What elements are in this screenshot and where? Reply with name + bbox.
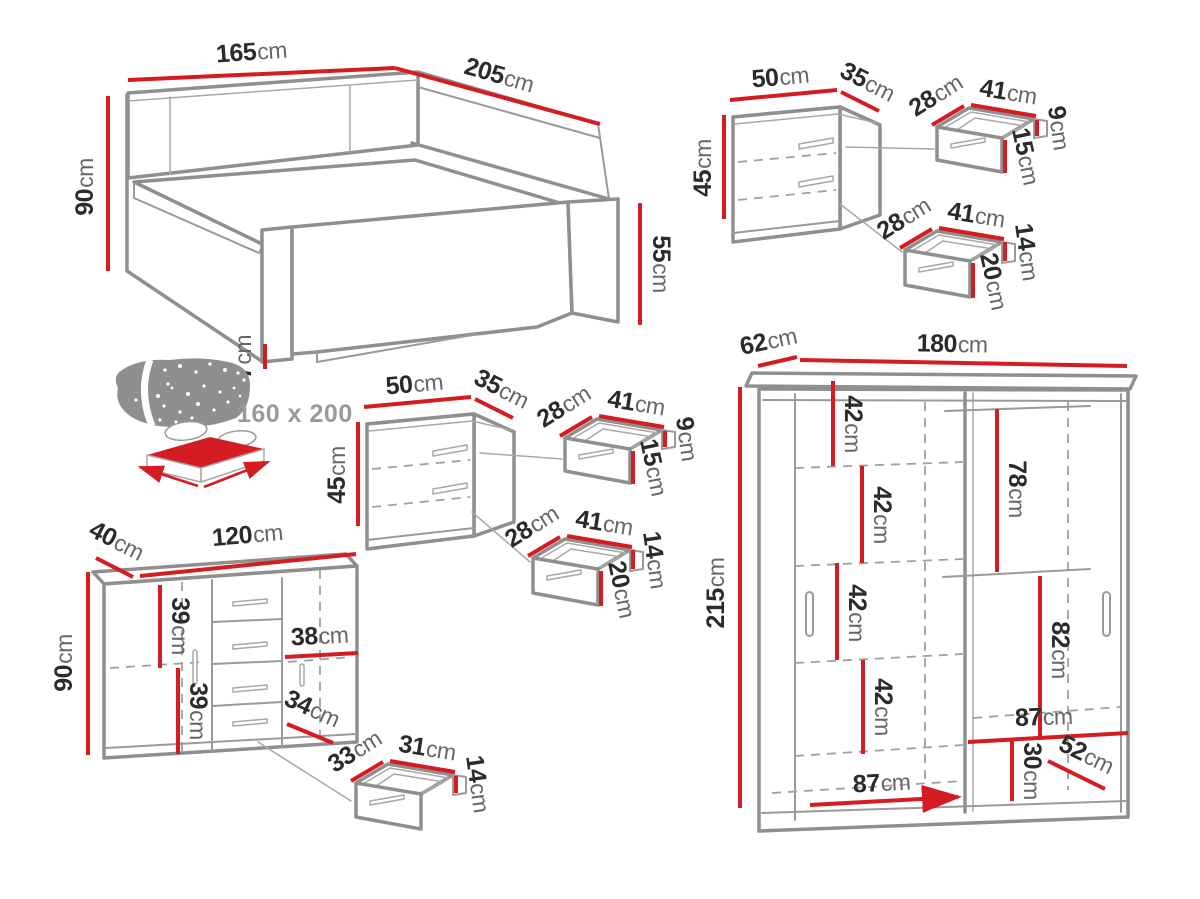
wardrobe-depth-label: 62cm xyxy=(737,322,799,361)
wardrobe-hanging-lower-label: 82cm xyxy=(1046,621,1074,678)
drawer-width-label: 41cm xyxy=(978,74,1039,111)
drawer-front xyxy=(356,783,421,829)
drawer-front xyxy=(905,250,970,297)
bed-height-label: 90cm xyxy=(71,158,99,215)
wardrobe-shelf-1-label: 42cm xyxy=(839,395,867,452)
dimension-line xyxy=(800,360,1127,366)
chest-height-label: 90cm xyxy=(50,634,78,691)
nightstand-front xyxy=(733,107,840,242)
mattress-size-icon: 160 x 200 xyxy=(116,358,353,487)
bed-width-dimension: 165cm xyxy=(128,36,395,80)
drawer-width-label: 41cm xyxy=(606,385,667,422)
nightstand-1-top-drawer: 28cm 41cm 9cm 15cm xyxy=(904,68,1076,187)
nightstand-side xyxy=(474,414,514,536)
wardrobe-shelf-2-label: 42cm xyxy=(868,486,896,543)
wardrobe-width-label: 180cm xyxy=(916,329,987,358)
wardrobe-width-dimension: 180cm xyxy=(800,329,1127,366)
chest-height-dimension: 90cm xyxy=(50,572,88,755)
mattress-size-label: 160 x 200 xyxy=(237,400,353,428)
dimension-line xyxy=(364,397,471,407)
sliding-door-handle xyxy=(806,592,813,636)
door-handle xyxy=(193,650,197,684)
chest-drawing: 40cm 120cm 90cm 39cm 39cm 38cm 34cm xyxy=(50,515,358,758)
door-handle xyxy=(300,664,304,686)
nightstand-depth-label: 35cm xyxy=(470,363,534,414)
chest-front xyxy=(104,566,357,758)
nightstand-depth-dimension: 35cm xyxy=(836,56,900,111)
nightstand-width-dimension: 50cm xyxy=(730,61,837,100)
nightstand-height-label: 45cm xyxy=(323,446,351,503)
nightstand-height-label: 45cm xyxy=(689,139,717,196)
wardrobe-bottom-height-label: 30cm xyxy=(1018,742,1046,799)
bed-footboard-left-post xyxy=(262,227,292,362)
nightstand-depth-dimension: 35cm xyxy=(470,363,534,418)
wardrobe-height-dimension: 215cm xyxy=(702,387,740,808)
drawer-front xyxy=(565,438,630,483)
nightstand-1-drawing: 50cm 35cm 45cm xyxy=(689,56,900,242)
drawer-width-label: 31cm xyxy=(397,730,458,767)
bed-length-dimension: 205cm xyxy=(395,52,600,124)
chest-width-label: 120cm xyxy=(211,518,284,552)
wardrobe-hanging-upper-label: 78cm xyxy=(1003,460,1031,517)
drawer-front xyxy=(937,127,1002,172)
wardrobe-top xyxy=(746,373,1136,389)
wardrobe-height-label: 215cm xyxy=(702,558,730,629)
bed-footboard-height-label: 55cm xyxy=(647,235,675,292)
nightstand-2-drawing: 50cm 35cm 45cm xyxy=(323,363,534,549)
dimension-line xyxy=(758,357,797,366)
chest-depth-label: 40cm xyxy=(85,515,149,566)
wardrobe-shelf-4-label: 42cm xyxy=(869,678,897,735)
drawer-width-label: 41cm xyxy=(574,505,635,542)
drawer-side-height-label: 9cm xyxy=(670,415,704,463)
wardrobe-drawing: 62cm 180cm 215cm 42cm 42cm 42cm 42cm 78 xyxy=(702,322,1136,831)
diagram-svg: 165cm 205cm 90cm 55cm 7cm xyxy=(0,0,1200,899)
nightstand-1-bottom-drawer: 28cm 41cm 14cm 20cm xyxy=(872,191,1045,312)
drawer-side-height-label: 9cm xyxy=(1042,104,1076,152)
chest-shelf-width-label: 38cm xyxy=(290,621,349,652)
nightstand-front xyxy=(367,414,474,549)
bed-length-label: 205cm xyxy=(461,52,537,98)
bed-height-dimension: 90cm xyxy=(71,96,108,271)
nightstand-side xyxy=(840,107,880,229)
starry-blanket xyxy=(116,358,250,427)
nightstand-2-bottom-drawer: 28cm 41cm 14cm 20cm xyxy=(500,499,673,620)
bed-footboard xyxy=(292,202,572,354)
wardrobe-front xyxy=(759,389,1128,831)
chest-inner-upper-label: 39cm xyxy=(166,597,194,654)
nightstand-depth-label: 35cm xyxy=(836,56,900,107)
bed-footboard-right-post xyxy=(568,199,618,322)
drawer-width-label: 41cm xyxy=(946,197,1007,234)
chest-inner-lower-label: 39cm xyxy=(184,682,212,739)
furniture-dimensions-diagram: 165cm 205cm 90cm 55cm 7cm xyxy=(0,0,1200,899)
bed-drawing: 165cm 205cm 90cm 55cm 7cm xyxy=(71,36,675,379)
chest-drawer-drawing: 33cm 31cm 14cm xyxy=(323,724,496,829)
nightstand-width-label: 50cm xyxy=(384,368,444,401)
dimension-line xyxy=(730,90,837,100)
drawer-side-height-label: 14cm xyxy=(637,529,673,590)
nightstand-height-dimension: 45cm xyxy=(323,422,358,526)
nightstand-2-top-drawer: 28cm 41cm 9cm 15cm xyxy=(532,379,704,498)
wardrobe-right-width-label: 87cm xyxy=(1015,702,1073,732)
wardrobe-left-width-label: 87cm xyxy=(852,768,911,799)
drawer-height-label: 14cm xyxy=(460,753,496,814)
wardrobe-depth-dimension: 62cm xyxy=(737,322,799,366)
wardrobe-shelf-3-label: 42cm xyxy=(843,584,871,641)
drawer-front xyxy=(533,558,598,605)
bed-width-label: 165cm xyxy=(215,36,288,69)
nightstand-width-label: 50cm xyxy=(750,61,810,94)
nightstand-width-dimension: 50cm xyxy=(364,368,471,407)
nightstand-height-dimension: 45cm xyxy=(689,115,724,219)
drawer-side-height-label: 14cm xyxy=(1009,221,1045,282)
bed-footboard-height-dimension: 55cm xyxy=(640,203,675,325)
sliding-door-handle xyxy=(1103,592,1110,636)
